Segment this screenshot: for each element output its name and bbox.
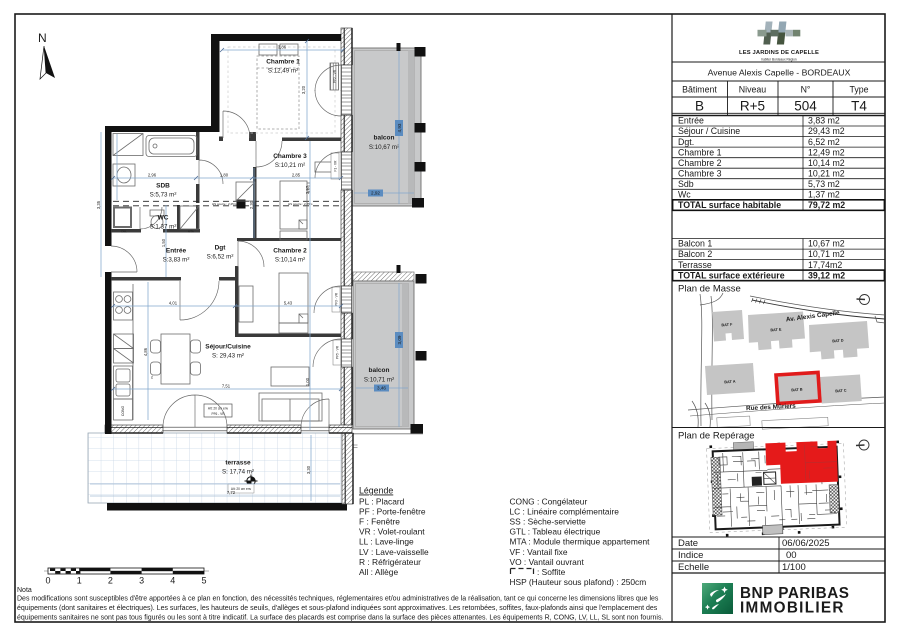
svg-text:F : Fenêtre: F : Fenêtre [359, 517, 400, 527]
svg-text:S:5,73 m²: S:5,73 m² [150, 192, 177, 199]
svg-text:504: 504 [794, 99, 817, 114]
svg-text:39,12 m2: 39,12 m2 [808, 271, 845, 281]
svg-text:Entrée: Entrée [678, 116, 704, 126]
svg-text:7,51: 7,51 [222, 383, 231, 388]
svg-text:VO : Vantail ouvrant: VO : Vantail ouvrant [510, 557, 585, 567]
svg-text:LL : Lave-linge: LL : Lave-linge [359, 537, 414, 547]
svg-text:3,09: 3,09 [397, 335, 402, 344]
svg-text:12,49 m2: 12,49 m2 [808, 147, 845, 157]
svg-text:Date: Date [678, 538, 698, 549]
svg-text:HS poutre : 2,25m: HS poutre : 2,25m [212, 202, 237, 206]
svg-text:0: 0 [45, 576, 50, 586]
svg-text:2,85: 2,85 [292, 172, 301, 177]
svg-text:Indice: Indice [678, 550, 703, 561]
svg-text:CONG : Congélateur: CONG : Congélateur [510, 497, 588, 507]
svg-text:4,93: 4,93 [397, 123, 402, 132]
svg-text:Séjour/Cuisine: Séjour/Cuisine [205, 344, 251, 351]
svg-text:Plan de Repérage: Plan de Repérage [678, 431, 755, 442]
svg-text:4: 4 [170, 576, 175, 586]
svg-text:1,80: 1,80 [220, 172, 229, 177]
svg-text:3,83 m2: 3,83 m2 [808, 116, 840, 126]
svg-text:N°: N° [801, 85, 811, 95]
svg-text:10,67 m2: 10,67 m2 [808, 239, 845, 249]
svg-text:BAT A: BAT A [724, 380, 736, 385]
svg-text:BAT C: BAT C [835, 389, 847, 394]
svg-text:WC: WC [158, 215, 169, 222]
svg-text:2,92: 2,92 [371, 191, 380, 196]
svg-text:S: 29,43 m²: S: 29,43 m² [212, 353, 244, 360]
svg-text:Type: Type [849, 85, 868, 95]
svg-text:IMMOBILIER: IMMOBILIER [740, 600, 845, 617]
svg-text:Chambre 2: Chambre 2 [273, 248, 307, 255]
svg-text:HSP (Hauteur sous plafond) : 2: HSP (Hauteur sous plafond) : 250cm [510, 577, 647, 587]
svg-text:Chambre 1: Chambre 1 [678, 147, 722, 157]
svg-text:TOTAL surface habitable: TOTAL surface habitable [678, 200, 781, 210]
svg-text:Dgt.: Dgt. [678, 137, 694, 147]
svg-text:1,37 m2: 1,37 m2 [808, 190, 840, 200]
svg-text:S:6,52 m²: S:6,52 m² [207, 254, 234, 261]
svg-text:S: 17,74 m²: S: 17,74 m² [222, 469, 254, 476]
svg-text:Dgt: Dgt [215, 245, 227, 252]
svg-text:Plan de Masse: Plan de Masse [678, 284, 741, 295]
svg-text:R : Réfrigérateur: R : Réfrigérateur [359, 557, 421, 567]
svg-text:GTL : Tableau électrique: GTL : Tableau électrique [510, 527, 601, 537]
svg-text:Bâtiment: Bâtiment [682, 85, 717, 95]
svg-text:29,43 m2: 29,43 m2 [808, 126, 845, 136]
svg-text:7,72: 7,72 [227, 490, 236, 495]
svg-text:1,50: 1,50 [161, 238, 166, 247]
svg-text:Des modifications sont suscept: Des modifications sont susceptibles d'êt… [17, 596, 659, 603]
svg-text:PF : Porte-fenêtre: PF : Porte-fenêtre [359, 507, 426, 517]
svg-text:S:3,83 m²: S:3,83 m² [163, 257, 190, 264]
svg-text:3: 3 [139, 576, 144, 586]
svg-text:Chambre 3: Chambre 3 [678, 168, 722, 178]
svg-text:1: 1 [77, 576, 82, 586]
svg-text:PF5 - VR: PF5 - VR [336, 345, 340, 359]
svg-text:balcon: balcon [369, 367, 390, 374]
svg-text:habiter Bordeaux Région: habiter Bordeaux Région [761, 58, 796, 62]
svg-text:6,52 m2: 6,52 m2 [808, 137, 840, 147]
svg-text:Balcon 2: Balcon 2 [678, 249, 712, 259]
svg-text:Echelle: Echelle [678, 562, 709, 573]
svg-text:3,35: 3,35 [96, 200, 101, 209]
svg-text:Niveau: Niveau [739, 85, 766, 95]
svg-text:N: N [38, 31, 47, 45]
svg-text:BAT F: BAT F [721, 323, 733, 328]
svg-text:terrasse: terrasse [225, 460, 251, 467]
svg-text:4,01: 4,01 [169, 300, 178, 305]
svg-text:3,86: 3,86 [278, 44, 287, 49]
svg-text:10,71 m2: 10,71 m2 [808, 249, 845, 259]
svg-text:10,14 m2: 10,14 m2 [808, 158, 845, 168]
svg-text:2,96: 2,96 [148, 172, 157, 177]
svg-text:S:10,71 m²: S:10,71 m² [364, 377, 394, 384]
svg-text:T4: T4 [851, 99, 867, 114]
svg-text:BAT E: BAT E [770, 328, 782, 333]
svg-text:All : Allège: All : Allège [359, 567, 398, 577]
svg-text:Terrasse: Terrasse [678, 260, 712, 270]
svg-text:Rue des Mûriers: Rue des Mûriers [746, 403, 796, 413]
svg-text:5,43: 5,43 [284, 300, 293, 305]
svg-text:Wc: Wc [678, 190, 691, 200]
svg-text:PF3 - VR: PF3 - VR [335, 292, 339, 306]
svg-text:Séjour / Cuisine: Séjour / Cuisine [678, 126, 740, 136]
svg-text:00: 00 [786, 550, 797, 561]
svg-text:équipements sanitaires ne sont: équipements sanitaires ne sont pas tous … [17, 615, 663, 622]
svg-text:Chambre 3: Chambre 3 [273, 153, 307, 160]
svg-text:S:10,67 m²: S:10,67 m² [369, 144, 399, 151]
svg-text:5,73 m2: 5,73 m2 [808, 179, 840, 189]
svg-text:PL: PL [150, 375, 154, 379]
svg-text:balcon: balcon [374, 135, 395, 142]
svg-text:Légende: Légende [359, 486, 393, 496]
svg-text:10,21 m2: 10,21 m2 [808, 168, 845, 178]
svg-text:79,72 m2: 79,72 m2 [808, 200, 845, 210]
svg-text:1/100: 1/100 [782, 562, 806, 573]
svg-text:Entrée: Entrée [166, 248, 187, 255]
svg-text:Alt: 20 cm env: Alt: 20 cm env [208, 407, 229, 411]
svg-text:Chambre 2: Chambre 2 [678, 158, 722, 168]
svg-text:F1 - VR: F1 - VR [334, 160, 338, 172]
svg-text:R+5: R+5 [740, 99, 765, 114]
svg-text:B: B [695, 99, 704, 114]
svg-text:MTA : Module thermique apparte: MTA : Module thermique appartement [510, 537, 651, 547]
svg-text:VF : Vantail fixe: VF : Vantail fixe [510, 547, 568, 557]
svg-text:PF2 - VR: PF2 - VR [333, 69, 337, 83]
svg-text:MTA: MTA [188, 230, 194, 234]
svg-text:Nota: Nota [17, 587, 32, 594]
svg-text:PL : Placard: PL : Placard [359, 497, 405, 507]
svg-text:BAT D: BAT D [832, 339, 844, 344]
svg-text:LV : Lave-vaisselle: LV : Lave-vaisselle [359, 547, 429, 557]
svg-text:S:10,14 m²: S:10,14 m² [275, 257, 305, 264]
svg-text:HS poutre : 2,25m: HS poutre : 2,25m [288, 202, 313, 206]
svg-text:TOTAL surface extérieure: TOTAL surface extérieure [678, 271, 785, 281]
svg-text:5: 5 [201, 576, 206, 586]
svg-text:06/06/2025: 06/06/2025 [782, 538, 830, 549]
svg-text:3,30: 3,30 [306, 465, 311, 474]
svg-text:3,46: 3,46 [377, 386, 386, 391]
svg-text:17,74m2: 17,74m2 [808, 260, 842, 270]
svg-text:1,00: 1,00 [305, 377, 310, 386]
svg-text:2: 2 [108, 576, 113, 586]
svg-text:S:1,37 m²: S:1,37 m² [150, 224, 177, 231]
svg-text:: Soffite: : Soffite [537, 567, 566, 577]
svg-text:Chambre 1: Chambre 1 [266, 59, 300, 66]
svg-text:2,30: 2,30 [249, 200, 254, 209]
svg-text:Avenue Alexis Capelle - BORDEA: Avenue Alexis Capelle - BORDEAUX [708, 68, 851, 78]
svg-text:3,97: 3,97 [305, 185, 310, 194]
svg-text:CML: CML [121, 230, 127, 234]
svg-text:VR : Volet-roulant: VR : Volet-roulant [359, 527, 425, 537]
svg-text:LES JARDINS DE CAPELLE: LES JARDINS DE CAPELLE [739, 50, 819, 56]
svg-text:PF6 - VR: PF6 - VR [211, 412, 225, 416]
svg-text:équipements (dont sanitaires e: équipements (dont sanitaires et électriq… [17, 605, 658, 612]
svg-text:Sdb: Sdb [678, 179, 694, 189]
svg-text:3,20: 3,20 [301, 85, 306, 94]
svg-text:Balcon 1: Balcon 1 [678, 239, 712, 249]
svg-text:Av. Alexis Capelle: Av. Alexis Capelle [786, 309, 841, 323]
svg-text:BAT B: BAT B [791, 388, 803, 393]
svg-text:S:10,21 m²: S:10,21 m² [275, 162, 305, 169]
svg-text:LC : Linéaire complémentaire: LC : Linéaire complémentaire [510, 507, 620, 517]
svg-text:SDB: SDB [156, 183, 170, 190]
svg-text:SS : Sèche-serviette: SS : Sèche-serviette [510, 517, 587, 527]
svg-text:S:12,49 m²: S:12,49 m² [268, 68, 298, 75]
svg-text:CONG: CONG [121, 406, 125, 417]
svg-text:4,86: 4,86 [143, 347, 148, 356]
